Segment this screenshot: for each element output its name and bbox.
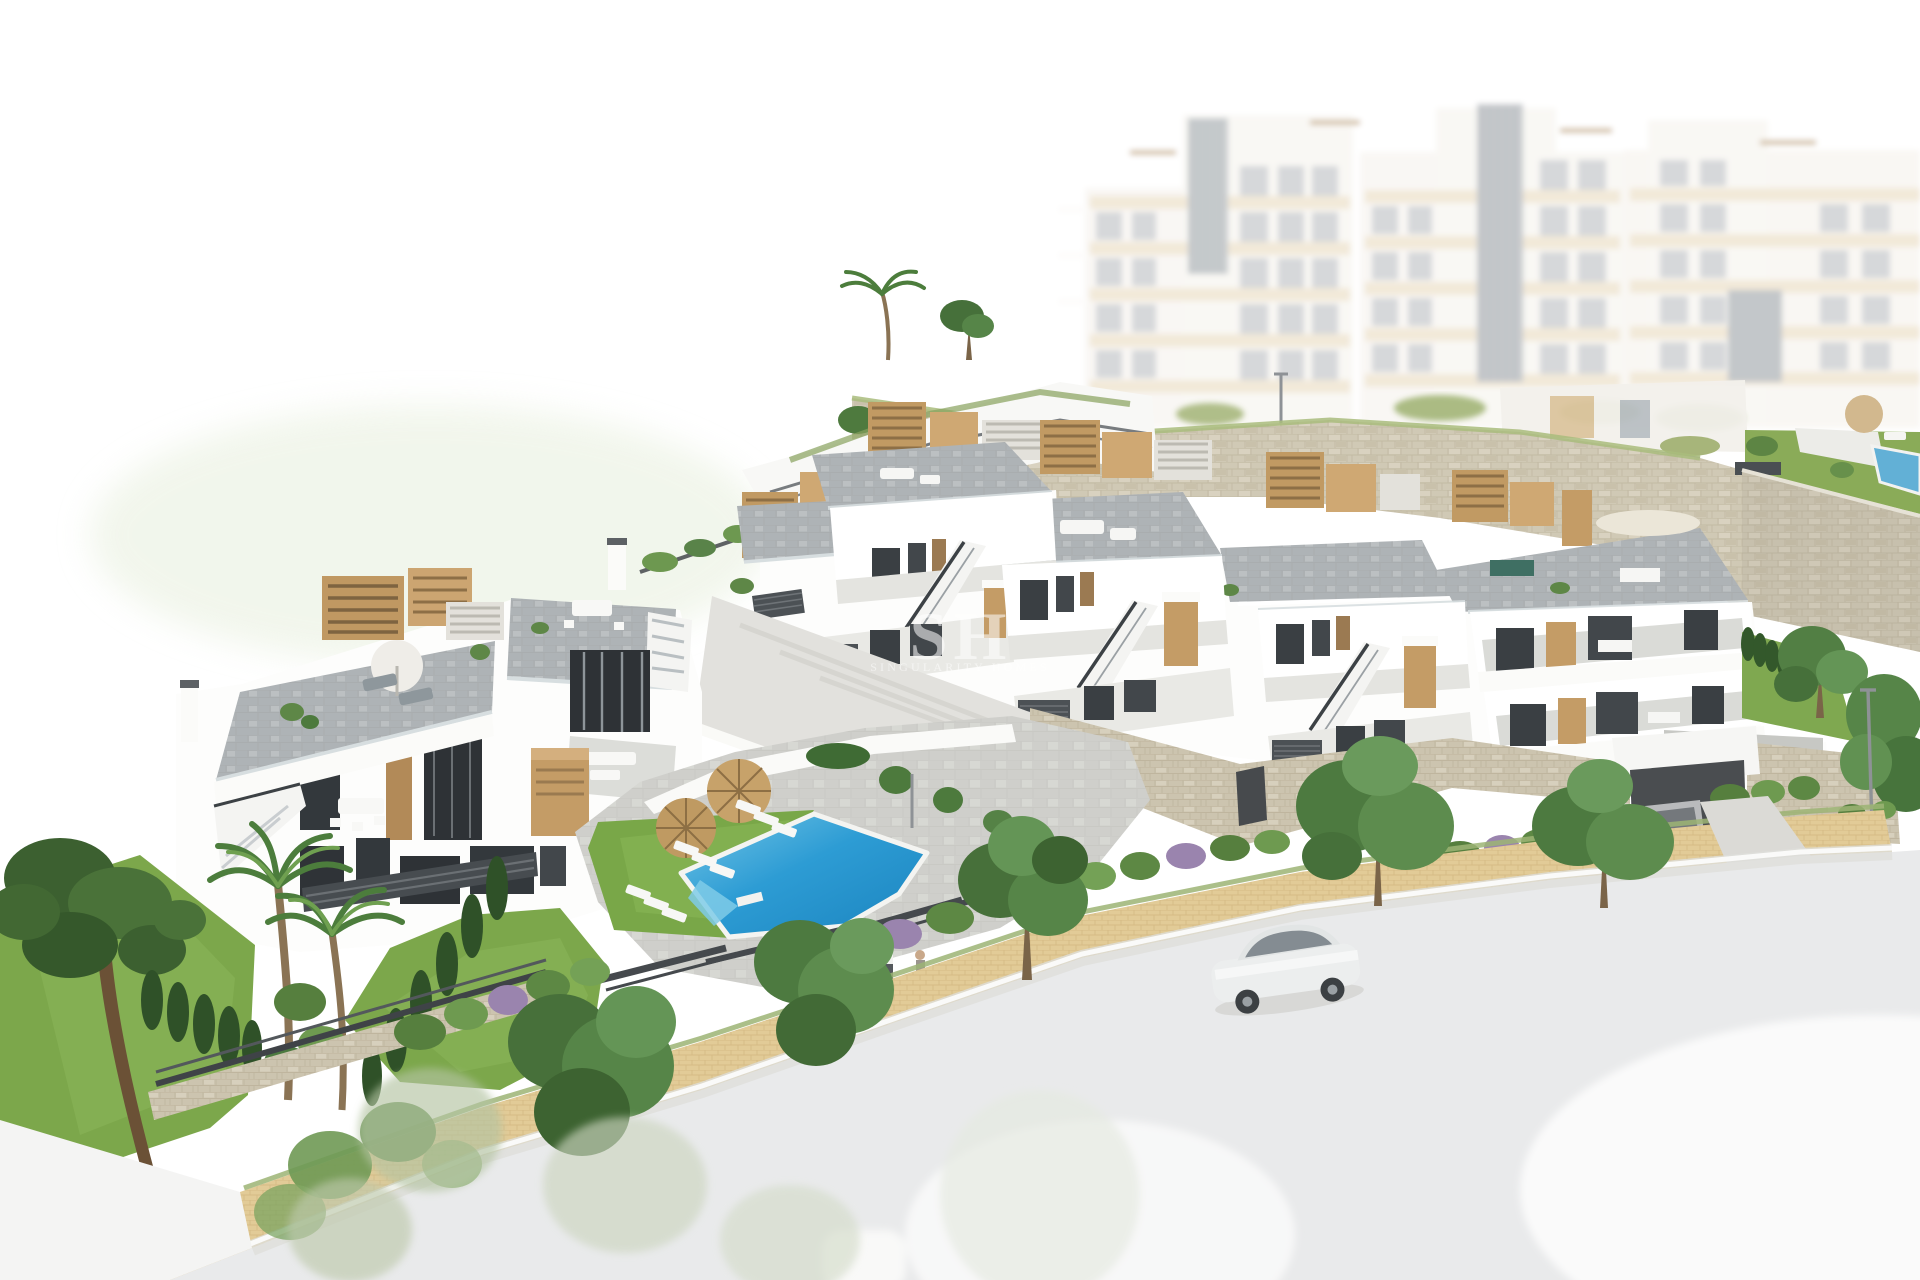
svg-text:SINGULARITY HOMES: SINGULARITY HOMES	[870, 660, 1050, 674]
